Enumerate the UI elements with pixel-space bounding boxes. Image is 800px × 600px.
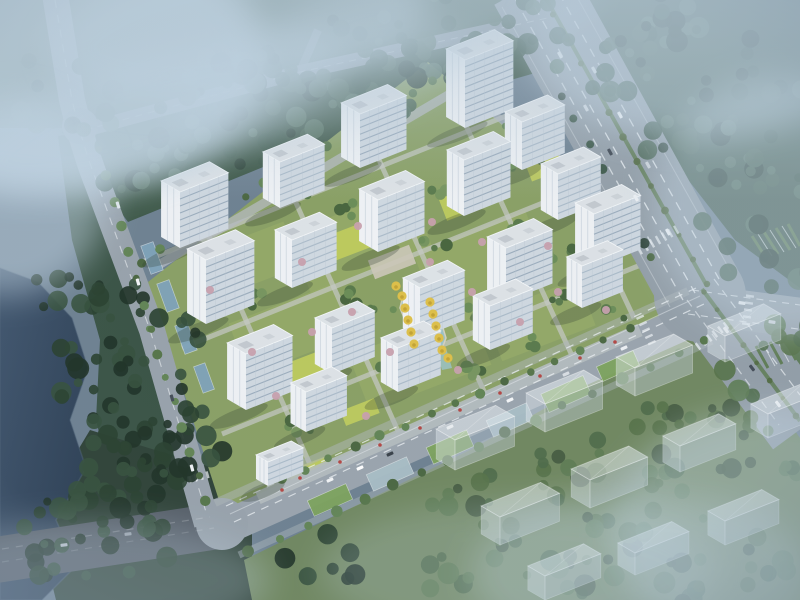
atmosphere: [0, 0, 800, 600]
cool-vignette: [0, 0, 800, 600]
aerial-render-canvas: [0, 0, 800, 600]
screenshot-root: [0, 0, 800, 600]
